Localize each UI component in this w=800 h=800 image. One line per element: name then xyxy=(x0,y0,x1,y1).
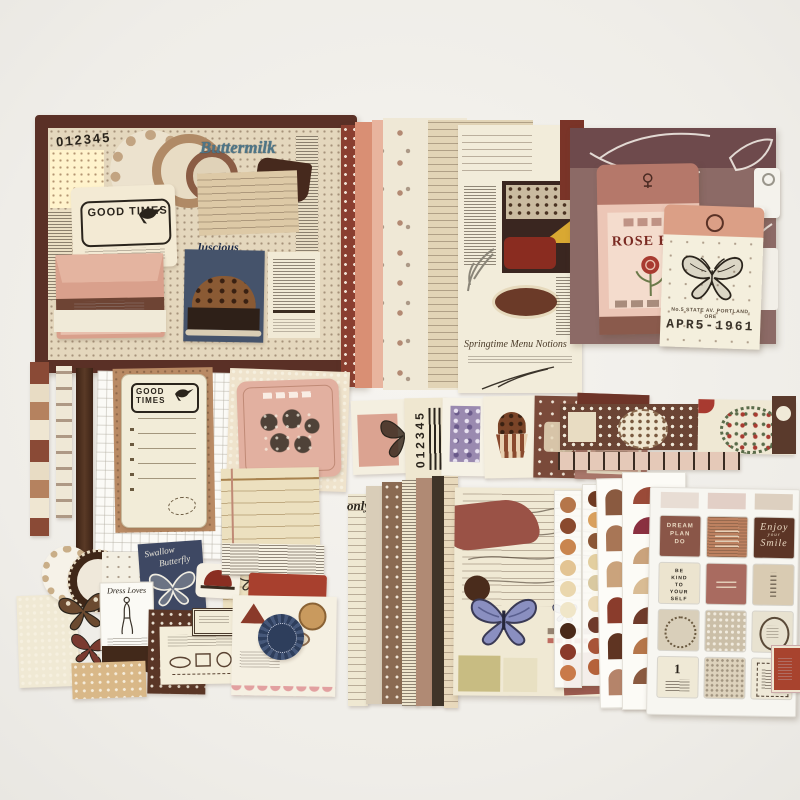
sticker-dream-plan-do: DREAM PLAN DO xyxy=(660,516,701,557)
feast-doodles xyxy=(166,647,239,678)
cake-photo-card xyxy=(183,249,265,342)
sticker-sheet-group: DREAM PLAN DO Enjoy your Smile BE KIND T… xyxy=(596,468,800,718)
ribbon-strip xyxy=(76,368,93,568)
sticker-lace-doily xyxy=(705,611,746,652)
swatch-olive xyxy=(458,655,500,691)
stack-sliver xyxy=(382,482,402,704)
swallow-icon xyxy=(137,205,164,226)
kit-flatlay-photo: 012345 Buttermilk GOOD TIMES luscious xyxy=(0,0,800,800)
wheat-sketch-icon xyxy=(478,363,558,391)
bottom-left-cluster: Swallow Butterfly Dress Loves xyxy=(14,540,344,715)
scallop-edge xyxy=(231,685,335,697)
washi-strip-cream xyxy=(56,366,72,518)
sticker-greige-quote xyxy=(753,565,794,606)
right-envelope-group: ROSE B No.5 STATE AV. PORTLAND. ORE APR5… xyxy=(568,126,798,351)
blue-butterfly-sticker xyxy=(464,587,545,648)
ticket-barcode xyxy=(428,408,441,470)
paper-under-envelope xyxy=(54,310,166,332)
stack-sliver xyxy=(366,486,382,704)
magazine-script-caption: Springtime Menu Notions xyxy=(464,339,580,350)
flap-ornament-icon xyxy=(639,172,657,190)
recipe-column xyxy=(268,252,320,338)
sticker-enjoy-smile: Enjoy your Smile xyxy=(754,518,795,559)
butterfly-seed-packet: No.5 STATE AV. PORTLAND. ORE APR5-1961 xyxy=(660,204,765,349)
scrapbook-paper-stack: Springtime Menu Notions xyxy=(340,118,585,393)
oval-medallion xyxy=(618,409,668,449)
sticker-lace-rect xyxy=(704,658,745,699)
checklist-lines xyxy=(138,417,196,493)
sticker-mauve-quote xyxy=(706,564,747,605)
dish-photo xyxy=(492,285,560,319)
sticker-number-label: 1 xyxy=(657,657,698,698)
butterfly-stamp-icon xyxy=(673,247,751,302)
checklist-header: GOOD TIMES xyxy=(136,387,176,405)
fan-card-cupcake xyxy=(483,396,538,479)
bun-sticker xyxy=(298,602,326,630)
sticker-be-kind: BE KIND TO YOUR SELF xyxy=(659,563,700,604)
good-times-checklist-ticket: GOOD TIMES xyxy=(121,374,207,528)
navy-round-sticker xyxy=(258,614,304,660)
stack-sliver xyxy=(348,494,368,706)
dot-strip xyxy=(554,490,582,688)
swatch-cream xyxy=(503,658,537,692)
lace-bookmark-brown xyxy=(560,404,702,450)
sticker-laurel-wreath xyxy=(658,610,699,651)
kraft-dotted-paper xyxy=(71,661,146,700)
sticker-terracotta-quote xyxy=(707,517,748,558)
lady-illustration-card: Dress Loves xyxy=(99,582,154,651)
swallow-icon xyxy=(174,387,194,402)
box-title: Buttermilk xyxy=(200,138,320,158)
cupcake-icon xyxy=(498,412,526,434)
lady-card-title: Dress Loves xyxy=(100,586,152,596)
pink-label-card xyxy=(236,378,341,480)
cake-slice-sticker xyxy=(240,603,266,623)
scribble-oval xyxy=(167,495,197,517)
script-paper-scrap xyxy=(197,170,299,235)
ticket-digits: 012345 xyxy=(413,410,428,468)
edge-paper-circle xyxy=(772,396,796,454)
wooden-box: 012345 Buttermilk GOOD TIMES luscious xyxy=(35,115,357,373)
text-strip-sticker xyxy=(222,543,325,577)
lady-silhouette-icon xyxy=(117,596,138,636)
red-label-sliver xyxy=(772,646,800,692)
fan-card-floral xyxy=(441,398,488,477)
leaf-sketch-icon xyxy=(460,245,500,295)
washi-strip-patterned xyxy=(30,362,49,536)
tag-eyelet xyxy=(762,173,775,186)
